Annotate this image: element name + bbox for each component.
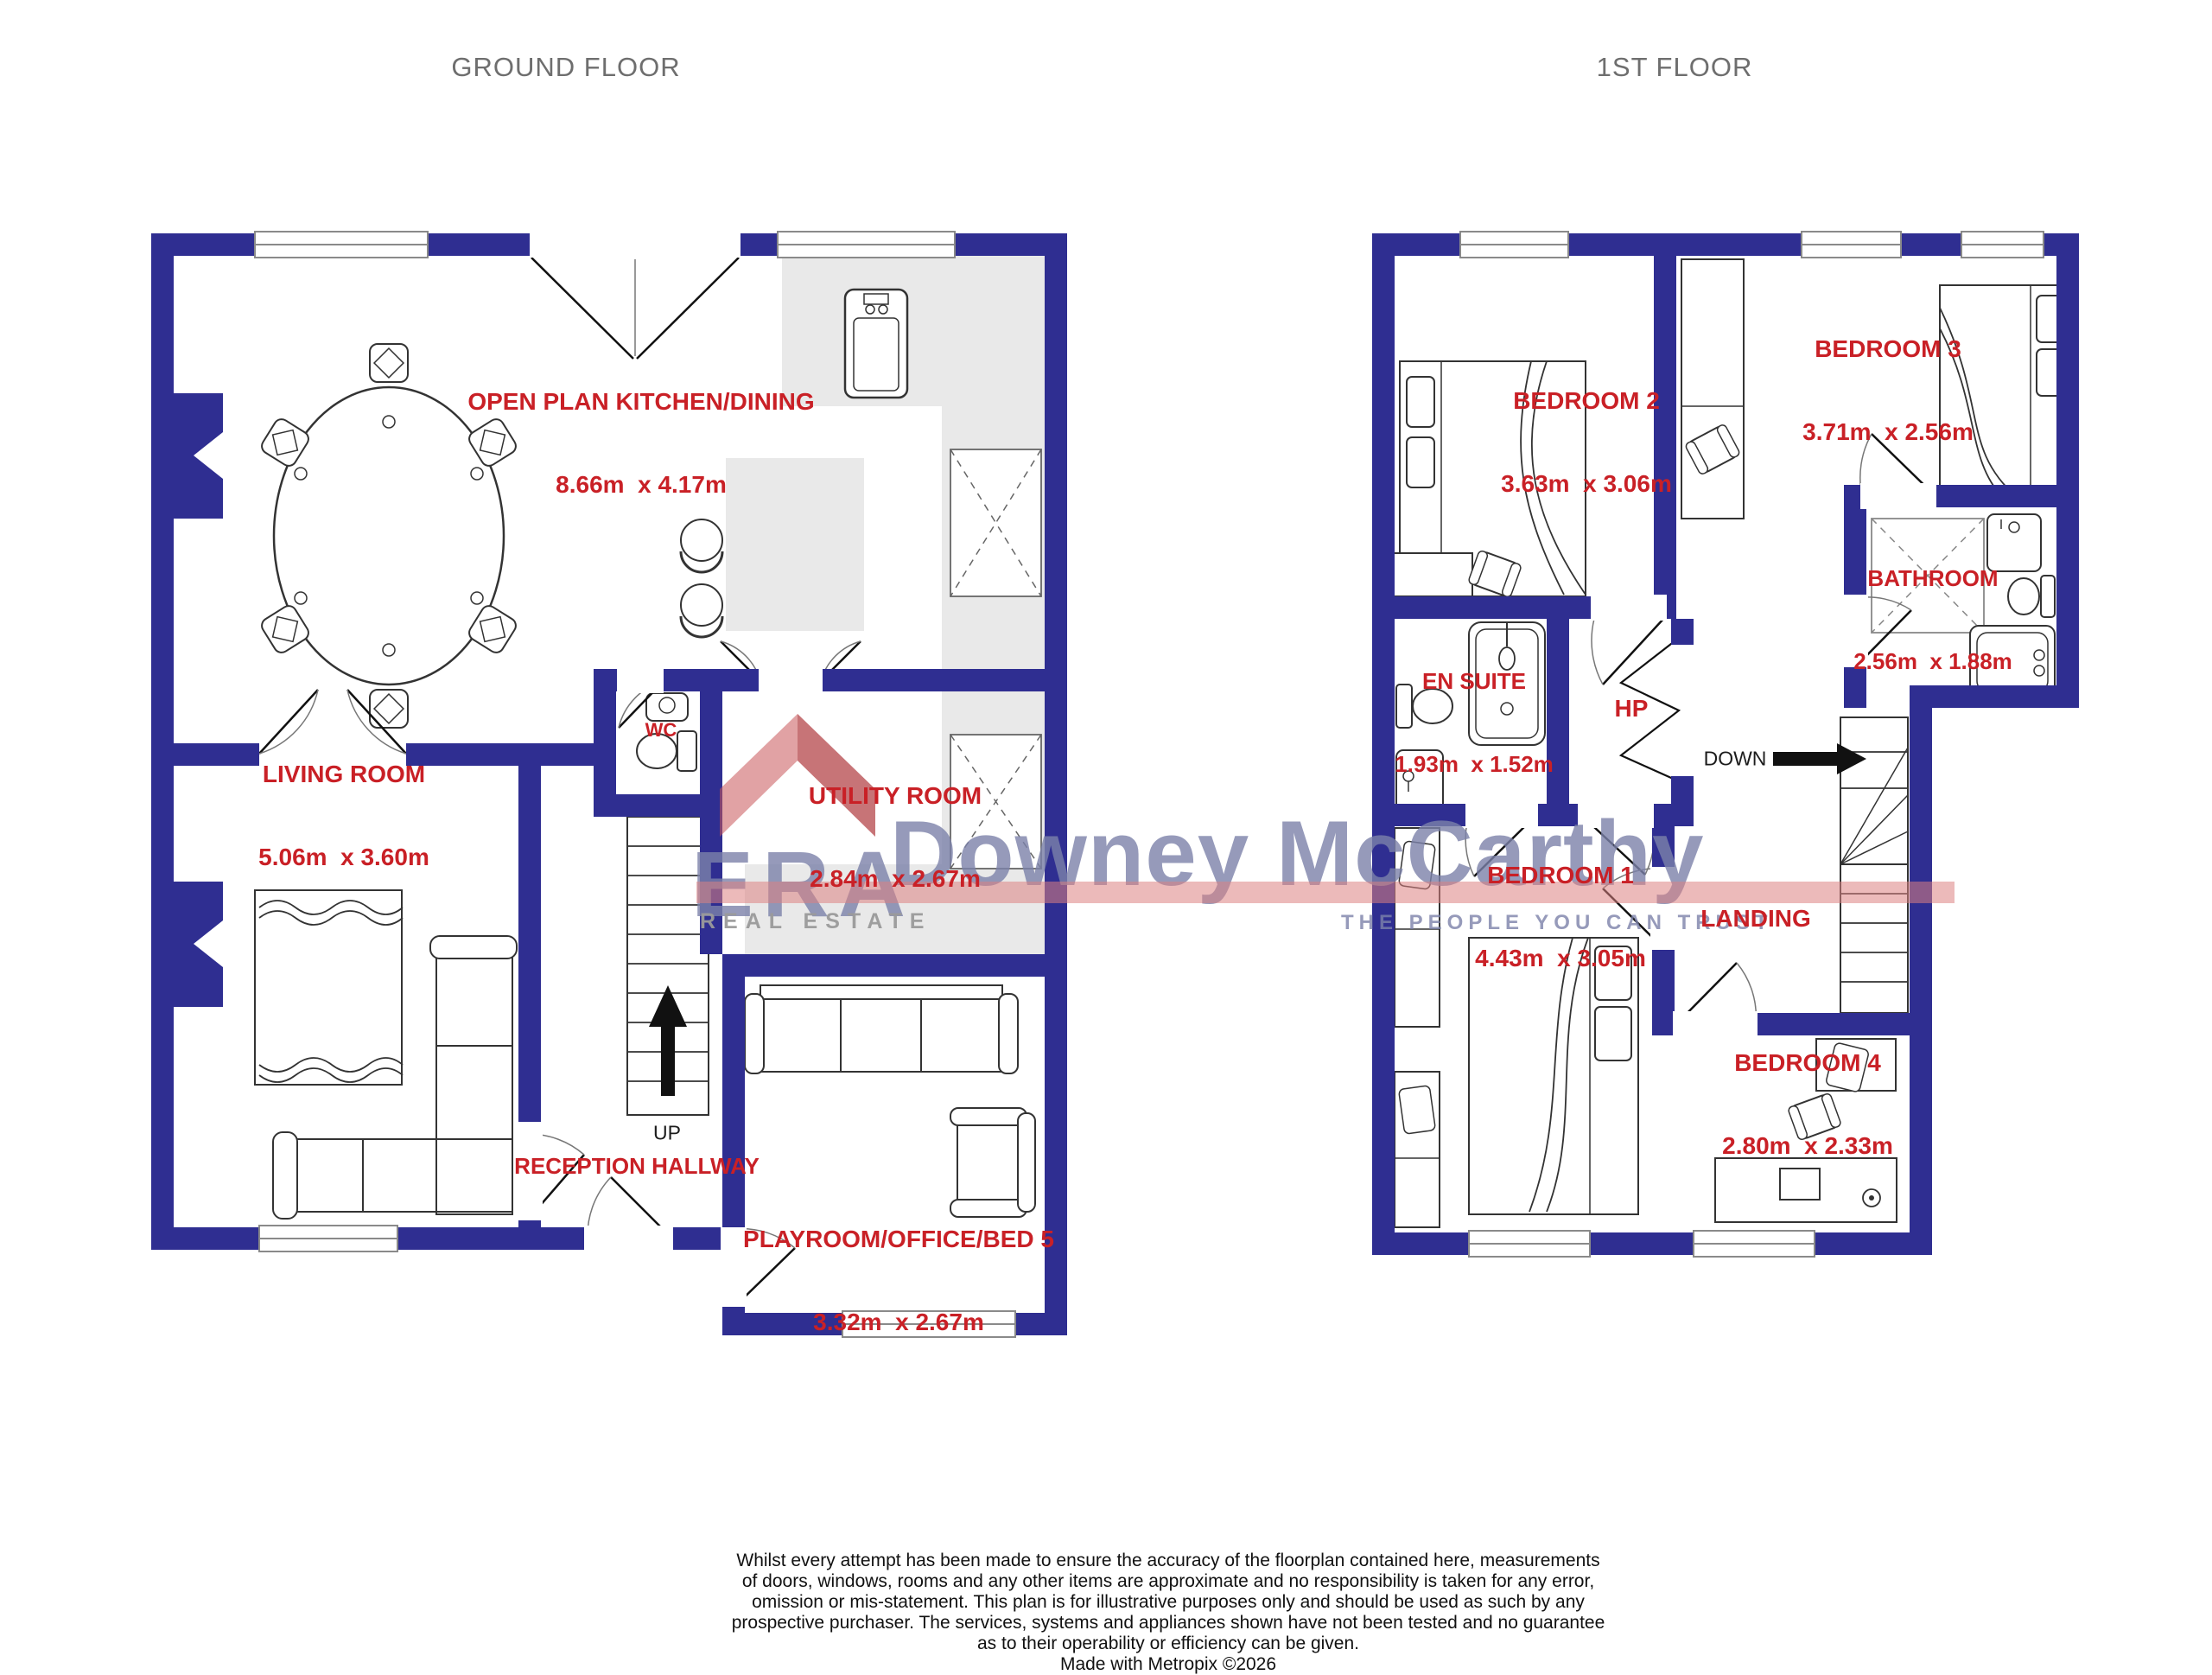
- bathroom-toilet: [2008, 576, 2055, 617]
- ensuite-shower: [1469, 622, 1545, 745]
- disclaimer-text: Whilst every attempt has been made to en…: [732, 1551, 1605, 1675]
- dining-table: [274, 387, 504, 685]
- kitchen-sink: [845, 290, 907, 398]
- ground-wall-gaps: [517, 232, 823, 1307]
- kitchen-hob: [950, 449, 1041, 596]
- bedroom1-wardrobes: [1395, 828, 1440, 1227]
- stairs-down: [1773, 717, 1908, 1013]
- ensuite-toilet: [1396, 685, 1452, 728]
- wc-toilet: [637, 731, 696, 771]
- playroom-sofa: [745, 985, 1018, 1073]
- landing-closet: [1681, 259, 1744, 519]
- bedroom3-bed: [1940, 285, 2069, 500]
- utility-washer: [950, 735, 1041, 869]
- wc-sink: [646, 693, 688, 721]
- island-stools: [681, 519, 722, 637]
- bedroom1-bed: [1469, 938, 1638, 1214]
- playroom-armchair: [950, 1108, 1035, 1217]
- bedroom4-desk: [1715, 1092, 1897, 1222]
- floorplan-page: ERA Downey McCarthy REAL ESTATE THE PEOP…: [0, 0, 2212, 1640]
- living-rug: [255, 890, 403, 1085]
- floorplan-drawing: [0, 0, 2212, 1640]
- stairs-up: [627, 817, 709, 1115]
- bedroom2-desk: [1376, 550, 1522, 597]
- bathroom-sink: [1987, 514, 2041, 571]
- bathroom-shower: [1872, 519, 1984, 633]
- bedroom4-unit: [1816, 1039, 1896, 1092]
- hp-bifold-door: [1621, 638, 1679, 781]
